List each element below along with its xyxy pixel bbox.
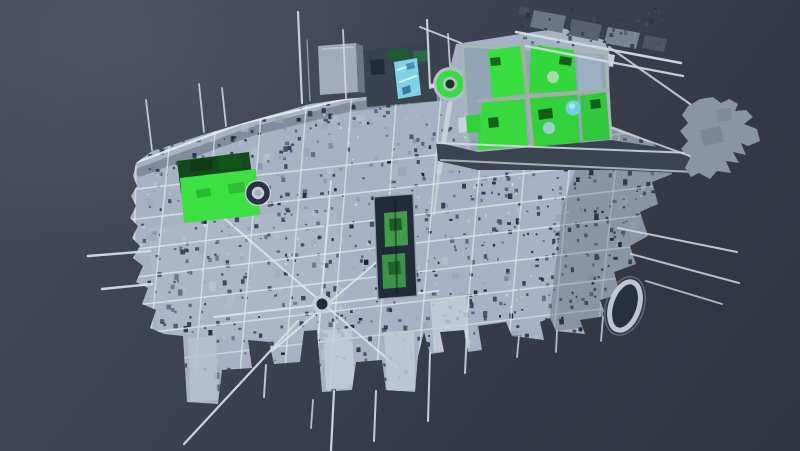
building-dot — [650, 223, 653, 226]
building-dot — [298, 137, 301, 141]
building-dot — [231, 136, 235, 142]
building-dot — [253, 371, 257, 377]
building-dot — [167, 374, 169, 376]
building-dot — [429, 145, 432, 149]
building-dot — [155, 117, 158, 120]
building-dot — [477, 359, 479, 361]
building-dot — [265, 359, 268, 363]
building-dot — [398, 167, 406, 177]
building-dot — [655, 223, 657, 226]
building-dot — [285, 105, 288, 107]
building-dot — [512, 183, 514, 186]
building-dot — [363, 385, 365, 387]
building-dot — [655, 42, 658, 45]
building-dot — [537, 212, 540, 216]
building-dot — [452, 345, 454, 347]
building-dot — [448, 370, 450, 371]
building-dot — [173, 127, 175, 129]
building-dot — [559, 186, 562, 190]
building-dot — [657, 348, 659, 350]
building-dot — [370, 123, 374, 126]
building-dot — [579, 334, 581, 336]
building-dot — [297, 372, 304, 377]
south-stub-road — [331, 391, 334, 450]
building-dot — [295, 130, 298, 133]
building-dot — [417, 279, 421, 282]
building-dot — [534, 345, 536, 346]
building-dot — [281, 141, 288, 147]
building-dot — [385, 135, 388, 137]
building-dot — [318, 375, 320, 377]
building-dot — [435, 282, 437, 285]
building-dot — [168, 199, 171, 203]
building-dot — [453, 340, 458, 345]
ne-block — [604, 27, 640, 49]
building-dot — [417, 236, 419, 237]
building-dot — [649, 268, 652, 270]
building-dot — [328, 134, 330, 135]
building-dot — [536, 259, 540, 261]
building-dot — [577, 348, 579, 349]
building-dot — [660, 194, 663, 198]
building-dot — [367, 243, 369, 245]
building-dot — [222, 336, 226, 339]
building-dot — [654, 135, 656, 137]
building-dot — [255, 360, 258, 363]
building-dot — [574, 385, 577, 388]
building-dot — [647, 260, 649, 263]
building-dot — [382, 328, 387, 332]
building-dot — [260, 96, 264, 100]
building-dot — [517, 209, 518, 211]
building-dot — [498, 334, 502, 338]
building-dot — [572, 44, 574, 46]
building-dot — [281, 353, 285, 355]
building-dot — [597, 346, 599, 348]
building-dot — [441, 203, 445, 209]
building-dot — [563, 376, 567, 381]
building-dot — [377, 395, 380, 399]
building-dot — [456, 215, 459, 219]
building-dot — [291, 144, 294, 146]
building-dot — [433, 132, 436, 136]
building-dot — [512, 337, 515, 339]
building-dot — [340, 127, 343, 129]
building-dot — [483, 282, 487, 285]
building-dot — [591, 382, 593, 384]
building-dot — [153, 127, 155, 130]
building-dot — [354, 360, 361, 364]
building-dot — [490, 375, 493, 378]
building-dot — [281, 175, 284, 178]
building-dot — [542, 296, 546, 301]
building-dot — [641, 262, 644, 265]
building-dot — [302, 389, 305, 392]
building-dot — [596, 323, 599, 327]
building-dot — [481, 184, 483, 186]
building-dot — [206, 106, 210, 109]
building-dot — [383, 115, 386, 117]
building-dot — [143, 226, 145, 229]
building-dot — [654, 11, 656, 14]
building-dot — [484, 242, 485, 243]
building-dot — [526, 13, 530, 18]
building-dot — [535, 336, 538, 338]
building-dot — [471, 312, 474, 315]
building-dot — [489, 298, 491, 299]
building-dot — [422, 361, 425, 364]
building-dot — [521, 296, 523, 297]
building-dot — [488, 180, 489, 181]
building-dot — [548, 295, 550, 296]
building-dot — [657, 327, 660, 331]
building-dot — [471, 198, 474, 200]
building-dot — [493, 297, 497, 302]
building-dot — [435, 274, 438, 277]
building-dot — [455, 249, 457, 251]
building-dot — [182, 140, 184, 143]
building-dot — [545, 28, 547, 31]
building-dot — [169, 343, 173, 346]
building-dot — [432, 363, 434, 366]
building-dot — [493, 178, 496, 181]
building-dot — [482, 354, 489, 363]
building-dot — [497, 258, 499, 260]
building-dot — [173, 388, 174, 390]
building-dot — [496, 352, 501, 357]
building-dot — [432, 292, 436, 295]
building-dot — [387, 307, 391, 311]
building-dot — [603, 41, 606, 43]
star-center — [317, 299, 328, 310]
building-dot — [408, 151, 411, 155]
building-dot — [299, 388, 303, 392]
blob-mark — [716, 108, 732, 122]
building-dot — [159, 146, 162, 150]
building-dot — [320, 392, 322, 393]
building-dot — [648, 315, 651, 318]
building-dot — [357, 136, 359, 138]
pond-pale — [547, 71, 559, 83]
building-dot — [266, 98, 268, 100]
building-dot — [349, 235, 351, 237]
building-dot — [630, 44, 634, 49]
building-dot — [419, 171, 422, 173]
north-stub-road — [307, 40, 310, 101]
building-dot — [545, 318, 548, 322]
building-dot — [491, 355, 494, 359]
building-dot — [161, 103, 162, 105]
building-dot — [574, 359, 576, 360]
building-dot — [482, 192, 486, 195]
building-dot — [532, 173, 535, 176]
building-dot — [485, 214, 487, 217]
building-dot — [357, 321, 360, 324]
building-dot — [290, 150, 292, 153]
east-park-annex — [466, 114, 481, 133]
south-stub-road — [556, 331, 557, 352]
building-dot — [425, 209, 428, 211]
building-dot — [636, 19, 640, 22]
building-dot — [422, 230, 423, 231]
building-dot — [323, 122, 329, 129]
building-dot — [651, 115, 654, 117]
building-dot — [464, 136, 466, 138]
building-dot — [365, 359, 368, 362]
building-dot — [352, 159, 354, 160]
building-dot — [459, 360, 463, 363]
building-dot — [501, 350, 505, 355]
se-road — [646, 281, 722, 304]
map-viewport[interactable] — [0, 0, 800, 451]
building-dot — [624, 30, 628, 35]
building-dot — [526, 211, 528, 213]
building-dot — [355, 204, 358, 206]
building-dot — [192, 126, 194, 129]
round-building-core — [255, 190, 262, 197]
building-dot — [577, 362, 580, 364]
building-dot — [279, 151, 283, 154]
park-mark — [538, 108, 553, 120]
building-dot — [369, 164, 373, 167]
building-dot — [641, 247, 645, 251]
building-dot — [151, 127, 153, 130]
building-dot — [498, 193, 500, 196]
building-dot — [654, 310, 656, 312]
building-dot — [529, 341, 532, 344]
building-dot — [199, 153, 201, 155]
building-dot — [317, 141, 319, 143]
building-dot — [653, 220, 655, 222]
building-dot — [244, 352, 247, 354]
building-dot — [311, 152, 315, 157]
building-dot — [521, 309, 523, 310]
building-dot — [245, 101, 248, 104]
building-dot — [450, 293, 452, 295]
building-dot — [452, 273, 459, 279]
building-dot — [353, 106, 356, 109]
building-dot — [160, 208, 162, 211]
building-dot — [505, 272, 512, 279]
park-mark — [590, 99, 601, 109]
block-piece — [384, 330, 416, 392]
building-dot — [658, 201, 660, 202]
building-dot — [505, 194, 509, 197]
building-dot — [592, 17, 596, 22]
building-dot — [667, 247, 669, 249]
building-dot — [401, 105, 403, 107]
building-dot — [657, 41, 661, 46]
building-dot — [506, 177, 510, 181]
building-dot — [353, 117, 356, 120]
top-structures — [318, 43, 467, 107]
complex-roof-dark — [370, 59, 385, 75]
building-dot — [184, 389, 185, 390]
south-stub-road — [428, 353, 430, 421]
building-dot — [269, 342, 274, 346]
building-dot — [370, 222, 374, 227]
building-dot — [171, 375, 176, 379]
park-east — [436, 42, 698, 174]
building-dot — [434, 257, 436, 259]
building-dot — [625, 347, 630, 353]
building-dot — [315, 124, 317, 127]
building-dot — [653, 245, 656, 248]
building-dot — [589, 352, 590, 353]
building-dot — [625, 362, 628, 364]
building-dot — [165, 348, 169, 352]
building-dot — [184, 347, 185, 348]
building-dot — [438, 262, 440, 264]
building-dot — [535, 265, 539, 268]
building-dot — [143, 239, 146, 243]
building-dot — [322, 108, 326, 113]
south-stub-road — [311, 400, 313, 428]
building-dot — [476, 386, 479, 389]
building-dot — [520, 387, 524, 391]
building-dot — [665, 184, 669, 188]
building-dot — [406, 118, 409, 121]
building-dot — [362, 386, 364, 388]
building-dot — [661, 18, 663, 21]
building-dot — [513, 378, 517, 383]
building-dot — [415, 205, 418, 208]
building-dot — [563, 361, 567, 364]
building-dot — [192, 153, 196, 159]
building-dot — [650, 97, 653, 100]
building-dot — [152, 329, 154, 330]
building-dot — [465, 239, 468, 244]
building-dot — [612, 28, 615, 32]
building-dot — [594, 325, 597, 328]
building-dot — [540, 374, 541, 375]
building-dot — [157, 380, 160, 384]
city-map-canvas[interactable] — [0, 0, 800, 451]
building-dot — [416, 138, 419, 142]
building-dot — [541, 278, 544, 282]
building-dot — [414, 178, 416, 180]
building-dot — [377, 389, 379, 390]
building-dot — [330, 145, 334, 148]
building-dot — [444, 235, 447, 238]
building-dot — [393, 149, 395, 150]
north-stub-road — [199, 84, 204, 132]
block-piece — [323, 328, 355, 390]
building-dot — [654, 8, 657, 11]
building-dot — [651, 385, 654, 389]
building-dot — [530, 275, 532, 277]
building-dot — [440, 114, 442, 115]
building-dot — [473, 332, 475, 334]
building-dot — [546, 381, 549, 384]
building-dot — [320, 174, 323, 176]
building-dot — [472, 299, 474, 301]
building-dot — [547, 206, 549, 208]
building-dot — [637, 267, 641, 271]
building-dot — [224, 138, 226, 140]
building-dot — [645, 22, 648, 27]
building-dot — [157, 388, 159, 390]
building-dot — [152, 166, 156, 171]
building-dot — [657, 341, 661, 344]
building-dot — [263, 111, 267, 114]
building-dot — [544, 329, 546, 330]
building-dot — [557, 177, 559, 179]
ne-block — [642, 35, 667, 52]
building-dot — [383, 364, 385, 366]
building-dot — [648, 222, 652, 226]
building-dot — [426, 317, 430, 321]
building-dot — [648, 12, 650, 15]
building-dot — [153, 108, 159, 114]
building-dot — [484, 290, 487, 292]
building-dot — [227, 368, 231, 373]
building-dot — [559, 193, 562, 195]
building-dot — [520, 25, 523, 27]
pond-highlight — [569, 103, 575, 109]
building-dot — [283, 127, 287, 130]
building-dot — [442, 257, 448, 265]
north-stub-road — [146, 100, 152, 150]
building-dot — [537, 356, 541, 361]
building-dot — [170, 114, 175, 118]
building-dot — [646, 319, 648, 322]
building-dot — [658, 12, 660, 15]
building-dot — [324, 114, 326, 116]
building-dot — [537, 206, 540, 210]
building-dot — [479, 381, 484, 385]
building-dot — [375, 157, 379, 160]
building-dot — [453, 336, 455, 339]
building-dot — [659, 129, 662, 132]
building-dot — [357, 347, 361, 352]
building-dot — [459, 354, 463, 357]
building-dot — [535, 356, 543, 367]
building-dot — [429, 202, 431, 204]
building-dot — [195, 106, 199, 108]
building-dot — [573, 330, 577, 333]
building-dot — [357, 115, 365, 125]
building-dot — [255, 124, 258, 128]
building-dot — [170, 194, 171, 195]
building-dot — [426, 342, 430, 347]
building-dot — [283, 146, 287, 152]
building-dot — [487, 259, 488, 261]
park-mark — [488, 117, 499, 128]
building-dot — [241, 116, 243, 118]
building-dot — [327, 168, 334, 174]
building-dot — [493, 244, 495, 247]
building-dot — [232, 108, 235, 112]
building-dot — [468, 219, 470, 222]
building-dot — [570, 370, 573, 373]
ne-road — [420, 27, 461, 43]
building-dot — [470, 303, 474, 308]
building-dot — [371, 321, 373, 323]
east-park-lawn — [477, 98, 528, 150]
building-dot — [158, 359, 161, 362]
building-dot — [276, 175, 278, 177]
building-dot — [478, 217, 480, 220]
building-dot — [648, 340, 651, 344]
building-dot — [504, 304, 506, 306]
building-dot — [355, 245, 357, 248]
building-dot — [617, 341, 619, 343]
building-dot — [171, 143, 174, 147]
building-dot — [424, 146, 427, 148]
building-dot — [522, 281, 525, 286]
building-dot — [269, 380, 270, 381]
